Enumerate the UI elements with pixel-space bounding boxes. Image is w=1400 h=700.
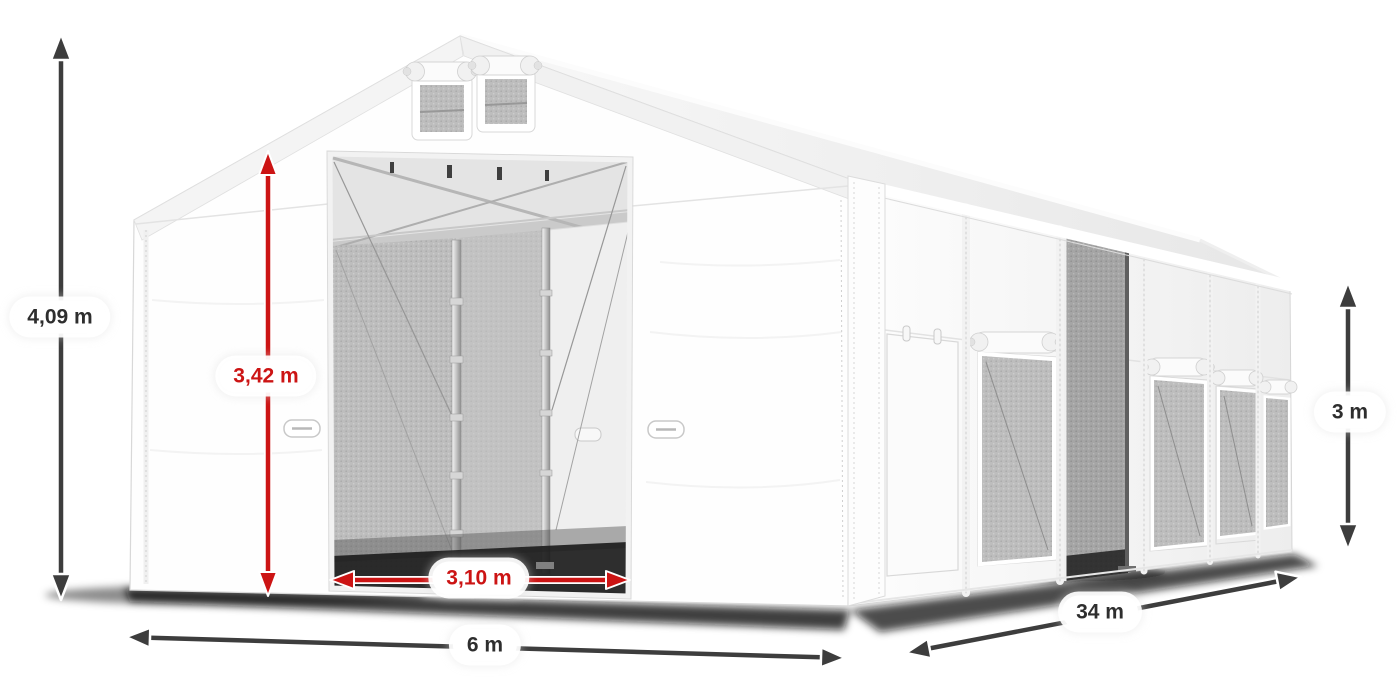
dimension-label-entrance-width: 3,10 m (432, 561, 525, 594)
dimension-label-inner-height: 3,42 m (219, 359, 312, 392)
door-handle (648, 421, 684, 438)
front-entrance-interior (325, 150, 635, 600)
dimension-label-total-height: 4,09 m (13, 300, 106, 333)
tent-side-wall (848, 180, 1297, 606)
dimension-label-wall-height: 3 m (1318, 395, 1382, 428)
side-open-entrance (1064, 232, 1136, 581)
tent-dimension-diagram: 4,09 m 3,42 m 3,10 m 6 m 34 m 3 m (0, 0, 1400, 700)
side-window (1211, 370, 1263, 544)
dimension-label-side-length: 34 m (1062, 595, 1138, 628)
side-door-panel (887, 326, 958, 576)
gable-vent-window (468, 56, 542, 132)
gable-vent-window (403, 62, 479, 140)
dimension-label-front-width: 6 m (453, 628, 517, 661)
side-window (967, 332, 1063, 566)
corner-pillar (841, 176, 885, 606)
interior-pole (452, 240, 461, 576)
side-window (1142, 358, 1215, 551)
door-strap (934, 329, 941, 344)
door-strap (903, 326, 910, 341)
door-handle (284, 420, 320, 437)
interior-pole (542, 228, 550, 574)
tent-illustration (0, 0, 1400, 700)
